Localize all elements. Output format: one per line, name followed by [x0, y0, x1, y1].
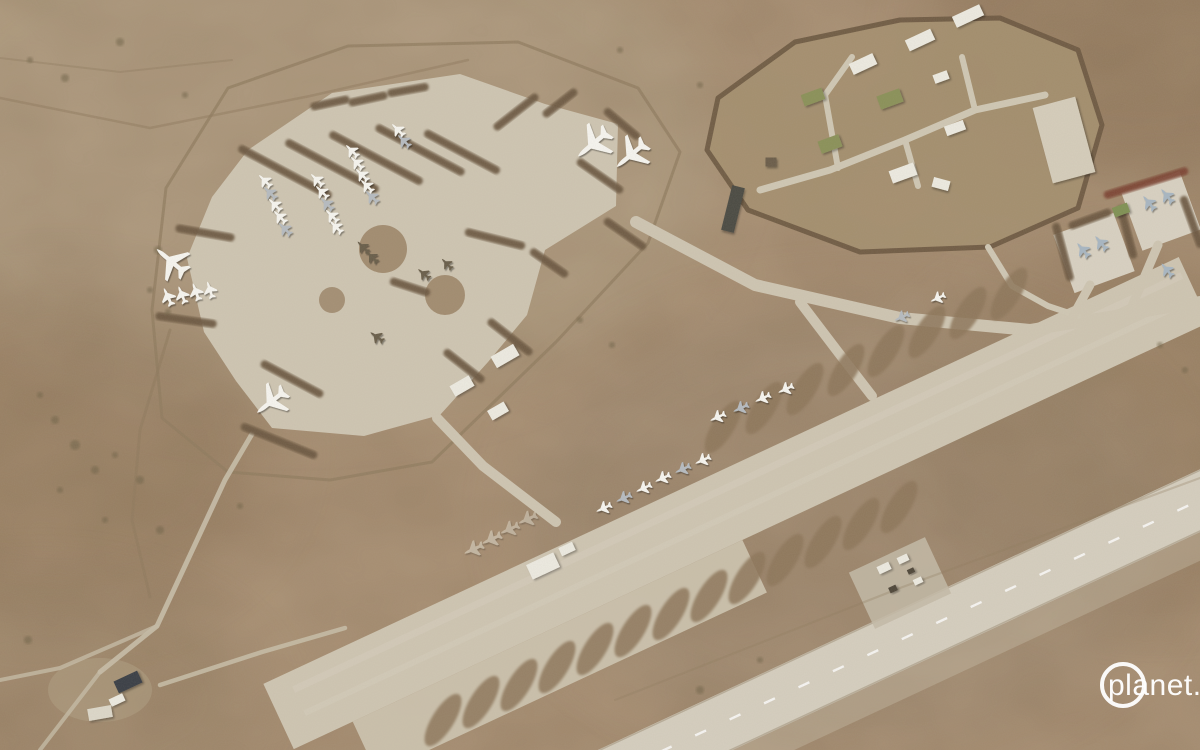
satellite-image: planet. [0, 0, 1200, 750]
sensor-grain [0, 0, 1200, 750]
planet-watermark: planet. [1102, 664, 1200, 706]
planet-logo-text: planet. [1108, 669, 1200, 702]
airbase-satellite-scene: planet. [0, 0, 1200, 750]
